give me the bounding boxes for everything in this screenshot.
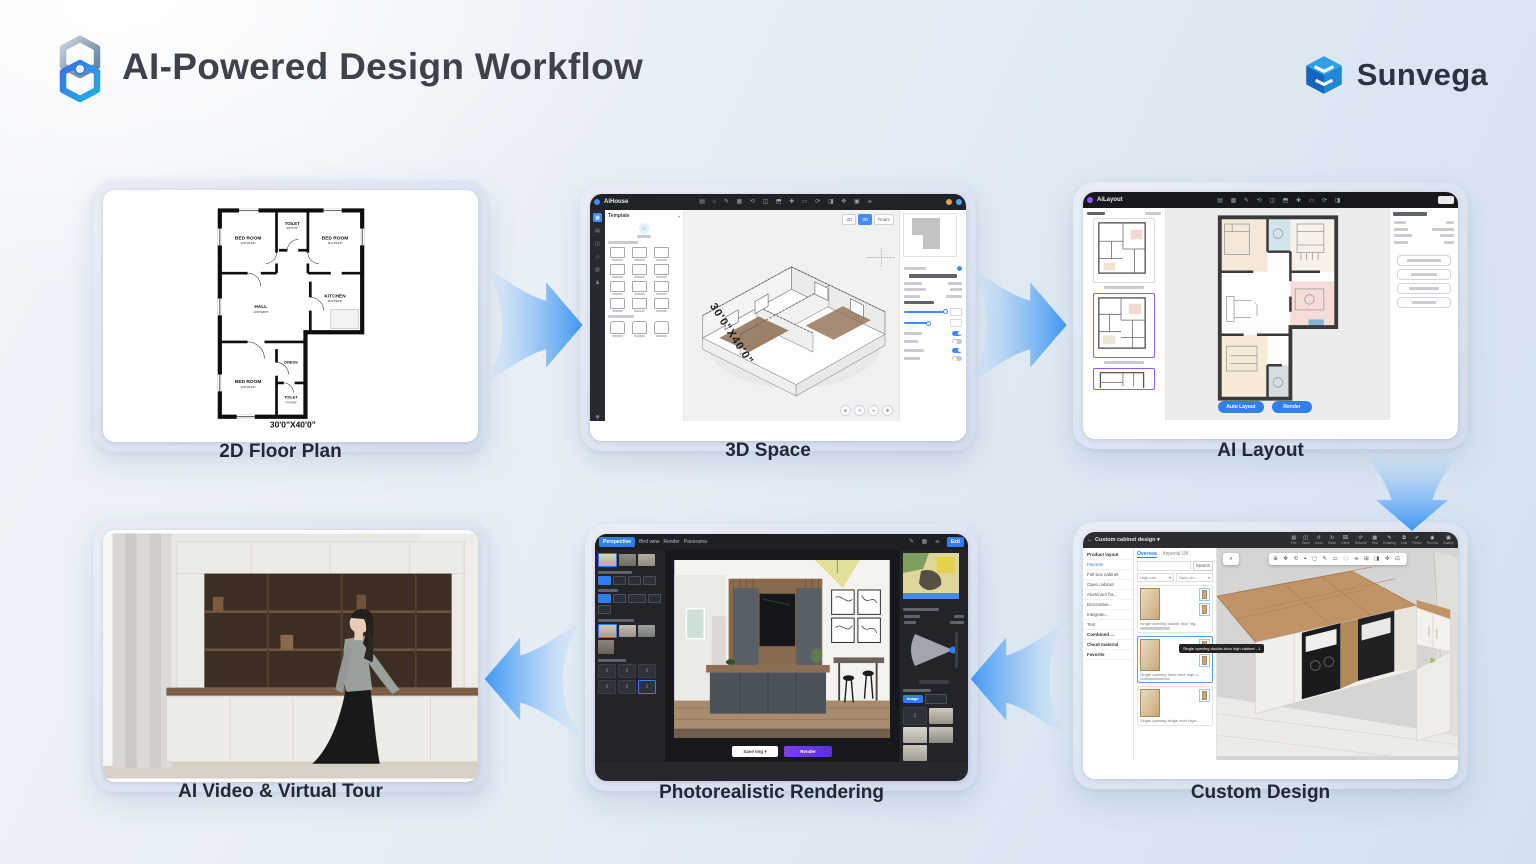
svg-text:BED ROOM: BED ROOM [234, 235, 260, 241]
aihouse-library-panel: Template ▾ ⌂ [605, 210, 684, 421]
component-library-grid-2[interactable] [608, 321, 680, 337]
tool-drawing[interactable]: ✎Drawing [1383, 536, 1396, 545]
cabinet-type-dropdown[interactable]: High cab...▾ [1137, 573, 1174, 582]
scene-thumb-1[interactable] [598, 553, 617, 567]
ailayout-topbar: AiLayout ▤ ▦ ✎ ⟲ ◫ ⬒ ✚ ▭ ⟳ ◨ [1083, 192, 1458, 208]
tab-panorama[interactable]: Panorama [684, 539, 707, 545]
brand-name: Sunvega [1357, 57, 1488, 93]
card-3d-space: AiHouse ▤ ⌂ ✎ ▦ ⟲ ◫ ⬒ ✚ ▭ ⟳ ◨ ✥ ▣ ⌯ ▦ ▤ … [580, 184, 976, 451]
tab-oversea[interactable]: Oversea [1137, 551, 1157, 558]
camera-fov-widget[interactable] [903, 628, 959, 672]
render-right-sidebar: Image ↥ [899, 550, 968, 762]
import-plan-icon[interactable]: ⌂ [639, 223, 650, 234]
zoom-tool-chip[interactable]: ⌕ [1223, 553, 1239, 565]
ailayout-app-name: AiLayout [1097, 197, 1123, 203]
tab-imperial-uk[interactable]: Imperial UK [1163, 551, 1189, 558]
render-viewport[interactable]: Save Img ▾ Render [665, 550, 899, 762]
page-title: AI-Powered Design Workflow [122, 46, 643, 88]
svg-text:DRESS: DRESS [284, 360, 298, 365]
product-card-1[interactable]: Single opening double door hig... [1137, 585, 1213, 633]
svg-text:⌂: ⌂ [1253, 301, 1255, 305]
svg-text:4'6"X7'0": 4'6"X7'0" [286, 226, 298, 230]
card-ai-video [93, 520, 488, 792]
arrow-left-step5-step4 [478, 610, 588, 748]
ailayout-app-window: AiLayout ▤ ▦ ✎ ⟲ ◫ ⬒ ✚ ▭ ⟳ ◨ [1083, 192, 1458, 439]
cabinet-3d-viewport[interactable]: ⌕ ⊕ ✥ ⟲ ⌖ ◻ ✎ ▭ ⟐ ⌯ ⊞ ◨ ✜ ⊡ ➤ [1217, 548, 1458, 760]
notification-icon[interactable] [946, 199, 952, 205]
aihouse-app-window: AiHouse ▤ ⌂ ✎ ▦ ⟲ ◫ ⬒ ✚ ▭ ⟳ ◨ ✥ ▣ ⌯ ▦ ▤ … [590, 194, 966, 441]
svg-text:BED ROOM: BED ROOM [234, 379, 260, 385]
render-button[interactable]: Render [784, 746, 832, 757]
height-slider[interactable] [904, 308, 962, 316]
scheme-thumbnail-3[interactable] [1093, 368, 1155, 390]
card-rendering: Perspective Bird view Render Panorama ✎ … [585, 524, 978, 791]
floor-plan-drawing: BED ROOM 11'0"X12'6" TOILET 4'6"X7'0" BE… [212, 202, 370, 430]
panel-action-button-2[interactable] [1397, 269, 1451, 280]
light-template-row-2[interactable]: ↥↥↥ [598, 680, 662, 694]
rail-figure-icon[interactable]: ♟ [593, 278, 602, 287]
rail-door-icon[interactable]: ◫ [593, 239, 602, 248]
rail-help-icon[interactable]: ◉ [593, 412, 602, 421]
interior-video-still [103, 530, 478, 782]
resolution-chips[interactable] [598, 594, 662, 603]
ailayout-properties-panel [1389, 208, 1458, 420]
ailayout-canvas[interactable]: ⌂ Auto Layout Render [1166, 208, 1389, 420]
card-custom-design: ← Custom cabinet design ▾ ▤File ◫Save ↺U… [1073, 522, 1468, 789]
aihouse-3d-viewport[interactable]: 2D 3D Roam [684, 210, 899, 421]
furnished-floor-plan: ⌂ [1215, 212, 1341, 404]
render-left-sidebar: ↥↥↥ ↥↥↥ [595, 550, 665, 762]
svg-text:TOILET: TOILET [284, 395, 298, 400]
search-button[interactable]: Search [1193, 561, 1213, 571]
rail-model-icon[interactable]: ▦ [593, 213, 602, 222]
cabinet-app-window: ← Custom cabinet design ▾ ▤File ◫Save ↺U… [1083, 532, 1458, 779]
company-chain-logo-icon [50, 34, 110, 104]
ai-video-frame [103, 530, 478, 782]
panel-action-button-4[interactable] [1397, 297, 1451, 308]
panel-action-button-1[interactable] [1397, 255, 1451, 266]
svg-text:11'0"X12'6": 11'0"X12'6" [240, 241, 255, 245]
render-topbar: Perspective Bird view Render Panorama ✎ … [595, 534, 968, 550]
svg-text:TOILET: TOILET [284, 221, 299, 226]
cabinet-category-menu[interactable]: Product layout Favorite Full box cabinet… [1083, 548, 1134, 760]
zoom-in-icon[interactable]: ⊕ [840, 405, 851, 416]
style-thumb-2[interactable] [619, 625, 636, 637]
brand-lockup: Sunvega [1301, 52, 1488, 98]
aihouse-app-name: AiHouse [604, 199, 628, 205]
aihouse-properties-panel [899, 210, 966, 421]
svg-text:BED ROOM: BED ROOM [321, 235, 347, 241]
slide-canvas: { "header": { "title": "AI-Powered Desig… [0, 0, 1536, 864]
auto-layout-button[interactable]: Auto Layout [1218, 401, 1264, 413]
svg-text:14'9"X20'0": 14'9"X20'0" [253, 310, 268, 314]
aihouse-toolbar-icons[interactable]: ▤ ⌂ ✎ ▦ ⟲ ◫ ⬒ ✚ ▭ ⟳ ◨ ✥ ▣ ⌯ [632, 198, 942, 206]
floor-plan-image: BED ROOM 11'0"X12'6" TOILET 4'6"X7'0" BE… [103, 190, 478, 442]
back-icon[interactable]: ← [1087, 537, 1093, 543]
scene-thumb-3[interactable] [638, 554, 655, 566]
floor-plan-minimap[interactable] [903, 213, 957, 257]
style-thumb-4[interactable] [598, 640, 614, 654]
account-chip[interactable] [1438, 196, 1454, 204]
tab-render[interactable]: Render [663, 539, 679, 545]
avatar[interactable] [956, 199, 962, 205]
tool-file[interactable]: ▤File [1291, 536, 1297, 545]
scheme-thumbnail-1[interactable] [1093, 218, 1155, 283]
search-input[interactable] [1137, 561, 1191, 571]
product-card-2-selected[interactable]: Single opening three door high c... [1137, 636, 1213, 684]
scene-thumb-2[interactable] [619, 554, 636, 566]
collapse-caret-icon[interactable]: ▾ [678, 214, 680, 219]
tool-finish[interactable]: ✔Finish [1412, 536, 1421, 545]
output-pano-chip[interactable] [925, 694, 947, 704]
cabinet-tooltip: Single opening double-door high cabinet … [1179, 644, 1264, 653]
output-image-chip[interactable]: Image [903, 695, 923, 703]
product-card-3[interactable]: Single opening single door high... [1137, 686, 1213, 726]
tool-rebuild[interactable]: ⟳Rebuild [1355, 536, 1367, 545]
style-thumb-3[interactable] [638, 625, 655, 637]
panel-action-button-3[interactable] [1397, 283, 1451, 294]
tool-clear[interactable]: ⌧Clear [1341, 536, 1349, 545]
sunvega-cube-icon [1301, 52, 1347, 98]
card-2d-floor-plan: BED ROOM 11'0"X12'6" TOILET 4'6"X7'0" BE… [93, 180, 488, 452]
rail-wall-icon[interactable]: ▤ [593, 226, 602, 235]
rotate-icon[interactable]: ⟲ [854, 405, 865, 416]
scheme-thumbnail-2-selected[interactable] [1093, 293, 1155, 358]
arrow-right-step1-step2 [476, 254, 590, 396]
label-custom-design: Custom Design [1073, 782, 1448, 804]
kitchen-render-image [673, 560, 891, 738]
arrow-down-step3-step6 [1352, 442, 1472, 536]
light-template-row-1[interactable]: ↥↥↥ [598, 664, 662, 678]
camera-minimap[interactable] [903, 553, 959, 599]
cabinet-design-title[interactable]: Custom cabinet design ▾ [1095, 537, 1160, 543]
tool-link[interactable]: ⧉Link [1401, 536, 1407, 545]
style-thumb-1[interactable] [598, 624, 617, 638]
arrow-right-step2-step3 [960, 254, 1074, 396]
tool-redo[interactable]: ↻Redo [1328, 536, 1336, 545]
tool-save[interactable]: ◫Save [1302, 536, 1310, 545]
label-3d-space: 3D Space [580, 440, 956, 462]
tab-perspective[interactable]: Perspective [599, 537, 635, 547]
label-2d-floor-plan: 2D Floor Plan [93, 441, 468, 463]
exit-button[interactable]: Exit [947, 537, 964, 547]
tool-record[interactable]: ◉Record [1427, 536, 1438, 545]
svg-text:KITCHEN: KITCHEN [324, 293, 346, 299]
aihouse-logo-icon [594, 199, 600, 205]
card-ai-layout: AiLayout ▤ ▦ ✎ ⟲ ◫ ⬒ ✚ ▭ ⟳ ◨ [1073, 182, 1468, 449]
svg-text:11'0"X12'6": 11'0"X12'6" [327, 241, 342, 245]
rail-diamond-icon[interactable]: ◇ [593, 252, 602, 261]
viewport-nav-buttons[interactable]: ⊕ ⟲ ⌖ ✥ [840, 405, 893, 416]
render-app-window: Perspective Bird view Render Panorama ✎ … [595, 534, 968, 781]
label-ai-video: AI Video & Virtual Tour [93, 781, 468, 803]
render-button[interactable]: Render [1272, 401, 1312, 413]
tool-test[interactable]: ▦Test [1372, 536, 1378, 545]
svg-text:HALL: HALL [254, 304, 267, 310]
aihouse-left-rail[interactable]: ▦ ▤ ◫ ◇ ▥ ♟ ◉ [590, 210, 605, 421]
cursor-icon: ➤ [1429, 656, 1436, 665]
component-library-grid[interactable] [608, 247, 680, 312]
kitchen-cabinet-model [1217, 548, 1458, 760]
aspect-ratio-chips[interactable] [598, 576, 662, 585]
cabinet-product-list: Oversea Imperial UK Search High cab...▾ … [1134, 548, 1217, 760]
ailayout-logo-icon [1087, 197, 1093, 203]
svg-text:7'0"X4'6": 7'0"X4'6" [285, 400, 297, 404]
plan-dimension: 30'0"X40'0" [269, 420, 315, 430]
svg-text:11'0"X12'0": 11'0"X12'0" [240, 385, 255, 389]
pan-icon[interactable]: ✥ [882, 405, 893, 416]
arrow-left-step6-step5 [964, 610, 1074, 748]
ailayout-toolbar-icons[interactable]: ▤ ▦ ✎ ⟲ ◫ ⬒ ✚ ▭ ⟳ ◨ [1127, 197, 1434, 204]
tab-bird-view[interactable]: Bird view [639, 539, 659, 545]
target-icon[interactable]: ⌖ [868, 405, 879, 416]
rail-grid-icon[interactable]: ▥ [593, 265, 602, 274]
tool-gallery[interactable]: ▣Gallery [1443, 536, 1454, 545]
library-header: Template [608, 213, 630, 219]
thickness-slider[interactable] [904, 319, 962, 327]
topbar-utility-icons[interactable]: ✎ ▦ ⌯ [909, 538, 943, 546]
canvas-tool-strip[interactable]: ⊕ ✥ ⟲ ⌖ ◻ ✎ ▭ ⟐ ⌯ ⊞ ◨ ✜ ⊡ [1268, 553, 1407, 565]
door-type-dropdown[interactable]: Open do...▾ [1176, 573, 1213, 582]
tool-undo[interactable]: ↺Undo [1315, 536, 1323, 545]
save-image-button[interactable]: Save Img ▾ [732, 746, 778, 757]
svg-text:11'0"X10'6": 11'0"X10'6" [327, 299, 342, 303]
layout-scheme-list[interactable] [1083, 208, 1166, 420]
label-rendering: Photorealistic Rendering [585, 782, 958, 804]
aihouse-topbar: AiHouse ▤ ⌂ ✎ ▦ ⟲ ◫ ⬒ ✚ ▭ ⟳ ◨ ✥ ▣ ⌯ [590, 194, 966, 210]
